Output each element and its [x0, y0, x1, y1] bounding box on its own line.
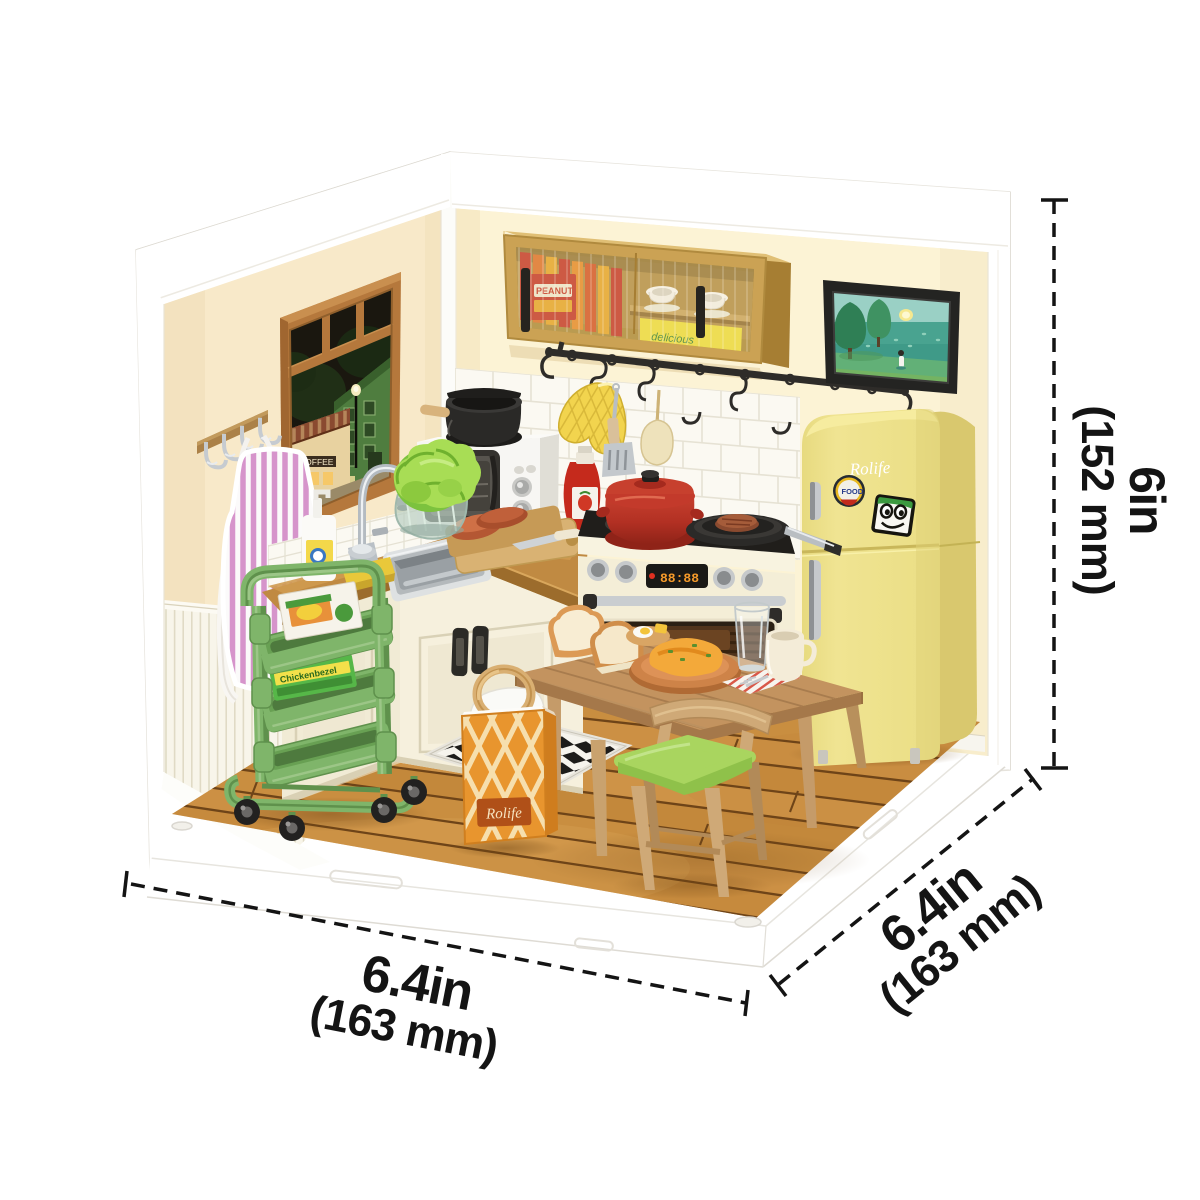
svg-text:6in: 6in: [1119, 466, 1175, 534]
svg-text:Rolife: Rolife: [485, 805, 523, 822]
svg-text:Rolife: Rolife: [848, 458, 891, 479]
svg-text:(152 mm): (152 mm): [1072, 405, 1123, 595]
svg-text:FOOD: FOOD: [842, 487, 864, 496]
svg-text:88:88: 88:88: [660, 571, 699, 586]
